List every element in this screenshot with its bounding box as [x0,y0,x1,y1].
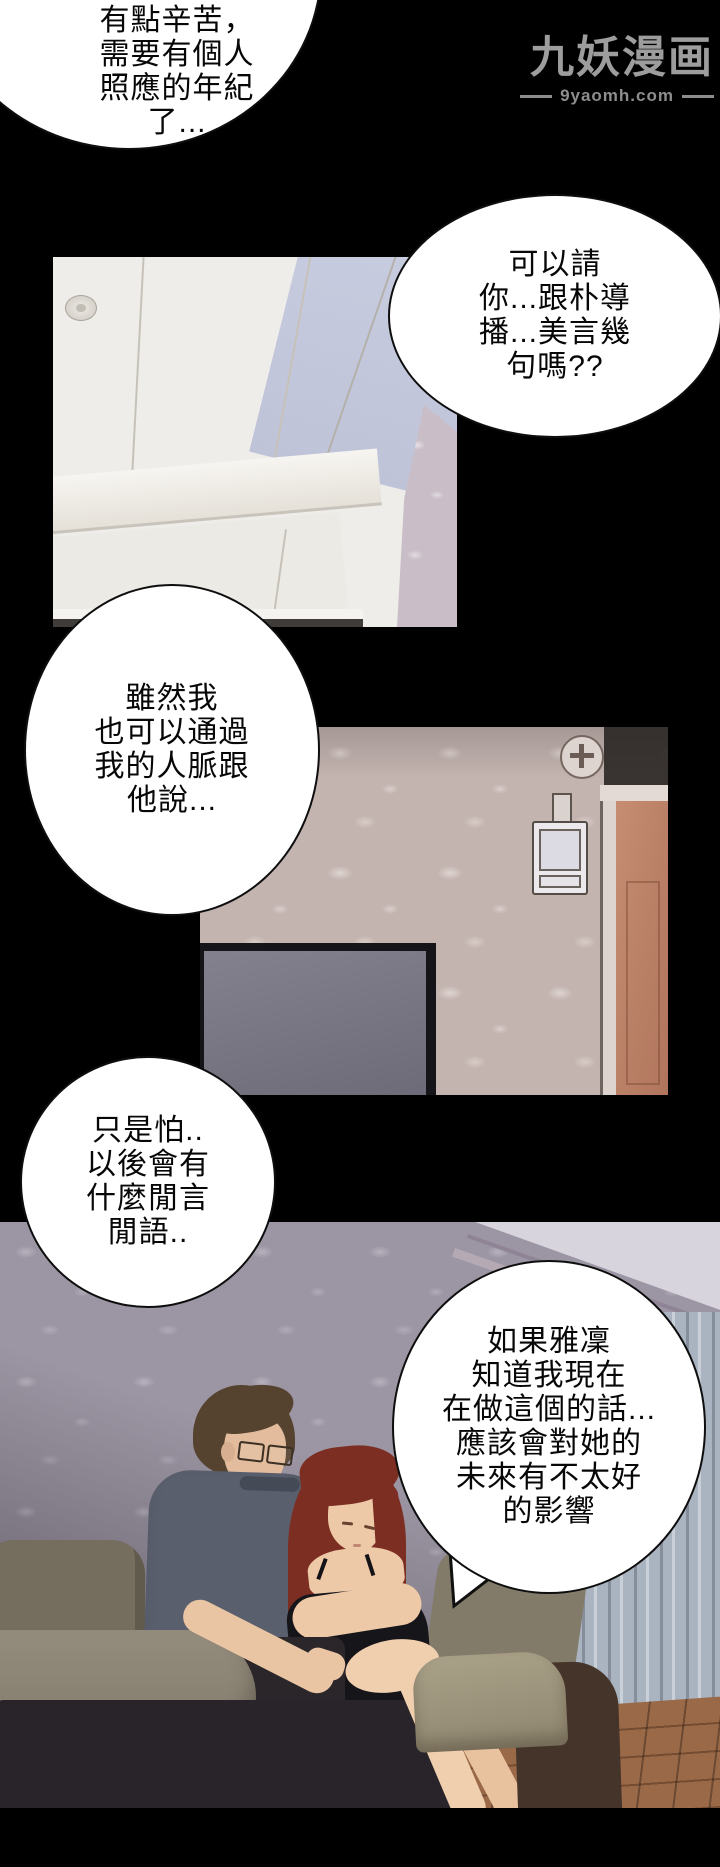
smoke-detector [65,295,97,321]
speech-bubble-request: 可以請 你...跟朴導 播...美言幾 句嗎?? [388,194,720,438]
man-ear [221,1442,235,1462]
speech-bubble-text: 雖然我 也可以通過 我的人脈跟 他說... [95,682,250,818]
glasses-lens [237,1441,265,1463]
door-panel-line [626,881,660,1085]
bubble-line: 有點辛苦， [100,4,255,38]
doorway-shadow [604,727,668,785]
watermark-dash-left [520,95,552,98]
watermark-title: 九妖漫画 [454,34,714,82]
bubble-line: 了... [100,106,255,140]
bubble-line: 未來有不太好 [442,1461,656,1495]
bubble-line: 我的人脈跟 [95,750,250,784]
tv-screen [204,951,426,1095]
bubble-line: 什麼閒言 [86,1182,210,1216]
man-shirt-collar [239,1476,299,1492]
bubble-line: 的影響 [442,1495,656,1529]
glasses-lens [266,1444,294,1466]
speech-bubble-connections: 雖然我 也可以通過 我的人脈跟 他說... [24,584,320,916]
bubble-line: 也可以通過 [95,716,250,750]
speech-bubble-text: 我自己一個 有點辛苦， 需要有個人 照應的年紀 了... [100,0,255,148]
intercom-slot [539,875,581,888]
bubble-line: 只是怕.. [86,1114,210,1148]
speech-bubble-yarin: 如果雅凜 知道我現在 在做這個的話... 應該會對她的 未來有不太好 的影響 [392,1260,706,1594]
tv [200,943,436,1095]
bubble-line: 雖然我 [95,682,250,716]
bubble-line: 以後會有 [86,1148,210,1182]
intercom-unit [532,821,588,895]
bubble-line: 句嗎?? [479,350,631,384]
wall-vent [560,735,604,779]
ceiling-seam [131,257,145,476]
bubble-line: 播...美言幾 [479,316,631,350]
comic-page: 九妖漫画 9yaomh.com [0,0,720,1867]
bubble-line: 閒語.. [86,1216,210,1250]
bubble-line: 他說... [95,784,250,818]
door [616,801,668,1095]
bubble-line: 可以請 [479,248,631,282]
bubble-line: 照應的年紀 [100,72,255,106]
watermark-subtitle: 9yaomh.com [454,86,714,106]
bubble-line: 知道我現在 [442,1359,656,1393]
watermark: 九妖漫画 9yaomh.com [454,34,714,106]
speech-bubble-worry: 只是怕.. 以後會有 什麼閒言 閒語.. [20,1056,276,1308]
bubble-line: 需要有個人 [100,38,255,72]
speech-bubble-text: 如果雅凜 知道我現在 在做這個的話... 應該會對她的 未來有不太好 的影響 [442,1325,656,1529]
bubble-line: 你...跟朴導 [479,282,631,316]
smoke-detector-dot [76,304,86,312]
woman-hand [296,1612,322,1632]
speech-bubble-age: 我自己一個 有點辛苦， 需要有個人 照應的年紀 了... [0,0,322,150]
speech-bubble-text: 可以請 你...跟朴導 播...美言幾 句嗎?? [479,248,631,384]
couch-seat-front [0,1700,460,1808]
bubble-line: 如果雅凜 [442,1325,656,1359]
bubble-line: 在做這個的話... [442,1393,656,1427]
watermark-site: 9yaomh.com [560,86,674,106]
vent-cross-bar [579,744,584,768]
couch-right-armrest [412,1650,569,1753]
watermark-dash-right [682,95,714,98]
intercom-screen [539,829,581,871]
bubble-line: 應該會對她的 [442,1427,656,1461]
speech-bubble-text: 只是怕.. 以後會有 什麼閒言 閒語.. [86,1114,210,1250]
